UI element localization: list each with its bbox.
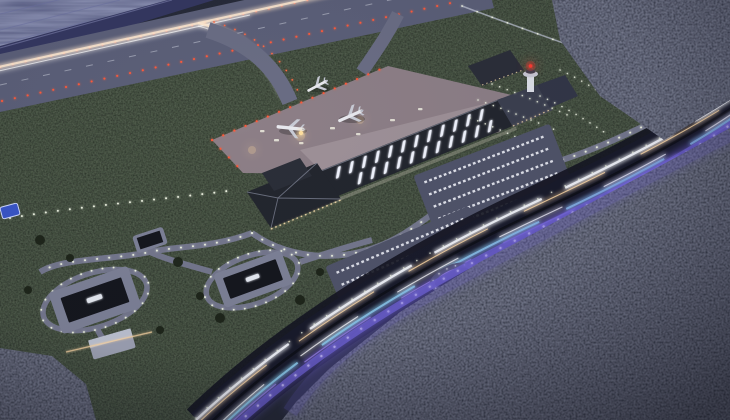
render-canvas bbox=[0, 0, 730, 420]
vignette bbox=[0, 0, 730, 420]
airport-night-render bbox=[0, 0, 730, 420]
